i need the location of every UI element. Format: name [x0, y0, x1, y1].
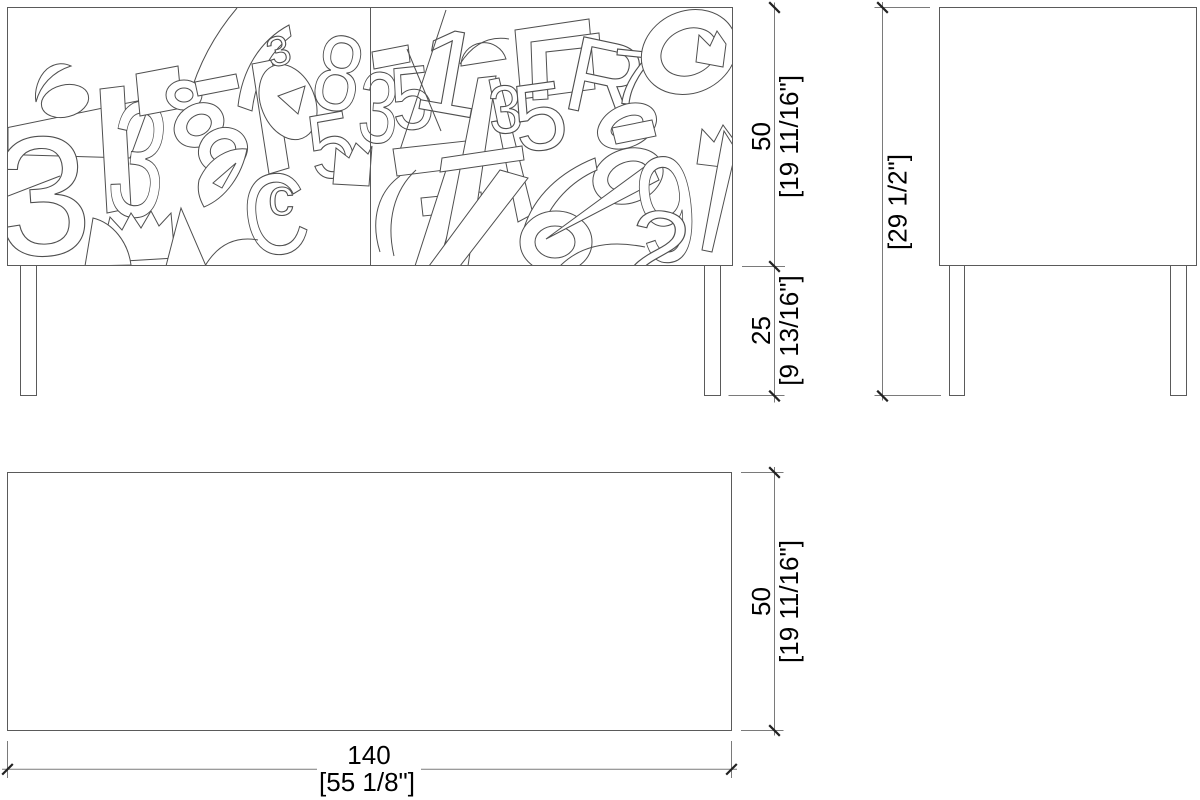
svg-text:50: 50 — [746, 587, 776, 616]
svg-text:50: 50 — [746, 122, 776, 151]
svg-text:[55 1/8"]: [55 1/8"] — [319, 767, 415, 797]
svg-text:[9 13/16"]: [9 13/16"] — [774, 275, 804, 385]
svg-text:140: 140 — [347, 740, 390, 770]
svg-text:[29 1/2"]: [29 1/2"] — [883, 154, 913, 250]
svg-text:[19 11/16"]: [19 11/16"] — [774, 75, 804, 198]
svg-text:c: c — [268, 169, 294, 227]
svg-text:2: 2 — [621, 187, 697, 306]
svg-text:25: 25 — [746, 316, 776, 345]
svg-text:[19 11/16"]: [19 11/16"] — [774, 540, 804, 663]
